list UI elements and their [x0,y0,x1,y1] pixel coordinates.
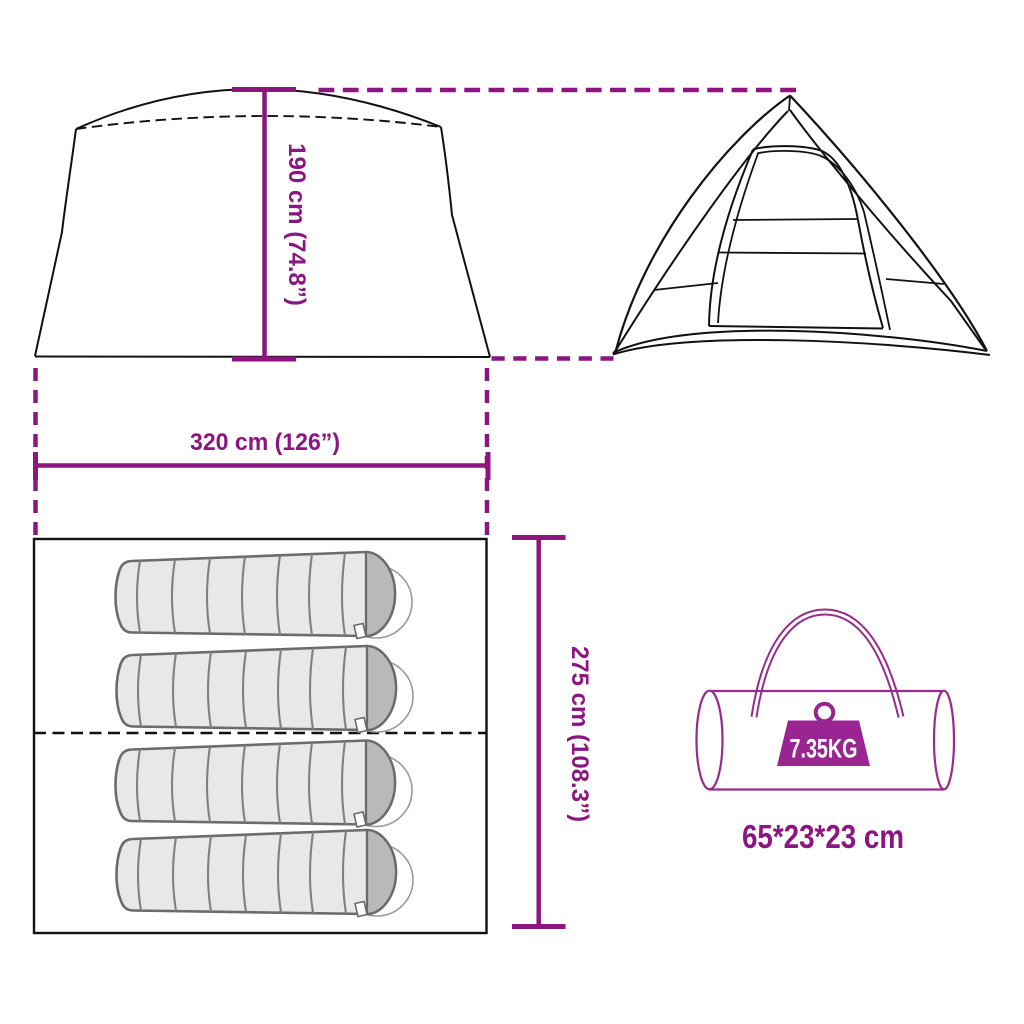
svg-text:190 cm (74.8”): 190 cm (74.8”) [283,143,310,306]
svg-text:275 cm (108.3”): 275 cm (108.3”) [566,646,593,822]
svg-text:320 cm (126”): 320 cm (126”) [190,429,340,456]
svg-text:7.35KG: 7.35KG [790,734,858,764]
svg-text:65*23*23 cm: 65*23*23 cm [742,818,904,855]
